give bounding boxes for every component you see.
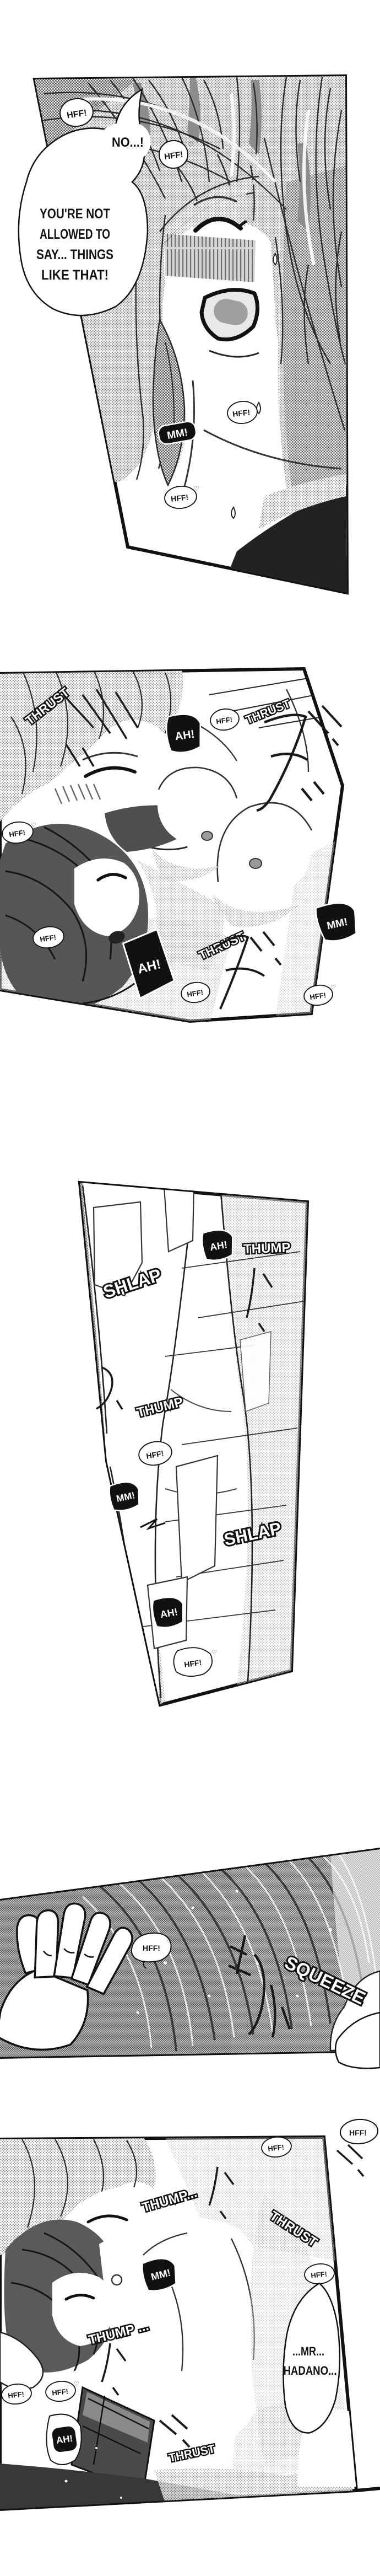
svg-text:♡: ♡ — [166, 1938, 172, 1945]
svg-text:YOU'RE NOT: YOU'RE NOT — [40, 206, 110, 222]
svg-text:HFF!: HFF! — [349, 2128, 367, 2137]
svg-text:HFF!: HFF! — [311, 2270, 328, 2280]
svg-text:NO...!: NO...! — [112, 135, 144, 150]
svg-text:LIKE THAT!: LIKE THAT! — [41, 267, 108, 283]
svg-text:♡: ♡ — [290, 2137, 295, 2143]
svg-text:♡: ♡ — [211, 1649, 217, 1656]
svg-text:SAY... THINGS: SAY... THINGS — [36, 247, 113, 262]
svg-text:♡: ♡ — [194, 486, 199, 492]
svg-text:HADANO...: HADANO... — [284, 2364, 337, 2378]
svg-text:♡: ♡ — [93, 99, 99, 108]
svg-text:HFF!: HFF! — [268, 2143, 285, 2153]
svg-text:HFF!: HFF! — [8, 2390, 25, 2400]
svg-text:HFF!: HFF! — [52, 2387, 69, 2397]
svg-text:♡: ♡ — [330, 984, 336, 991]
svg-text:♡: ♡ — [372, 2123, 378, 2130]
svg-text:HFF!: HFF! — [143, 1944, 160, 1952]
svg-text:HFF!: HFF! — [232, 408, 250, 418]
svg-text:...MR...: ...MR... — [292, 2344, 324, 2358]
svg-text:ALLOWED TO: ALLOWED TO — [40, 227, 110, 242]
svg-text:♡: ♡ — [74, 2381, 79, 2387]
svg-text:THUMP: THUMP — [243, 1240, 291, 1257]
svg-text:HFF!: HFF! — [170, 493, 188, 503]
svg-text:♡: ♡ — [187, 141, 193, 148]
svg-text:♡: ♡ — [31, 822, 36, 829]
